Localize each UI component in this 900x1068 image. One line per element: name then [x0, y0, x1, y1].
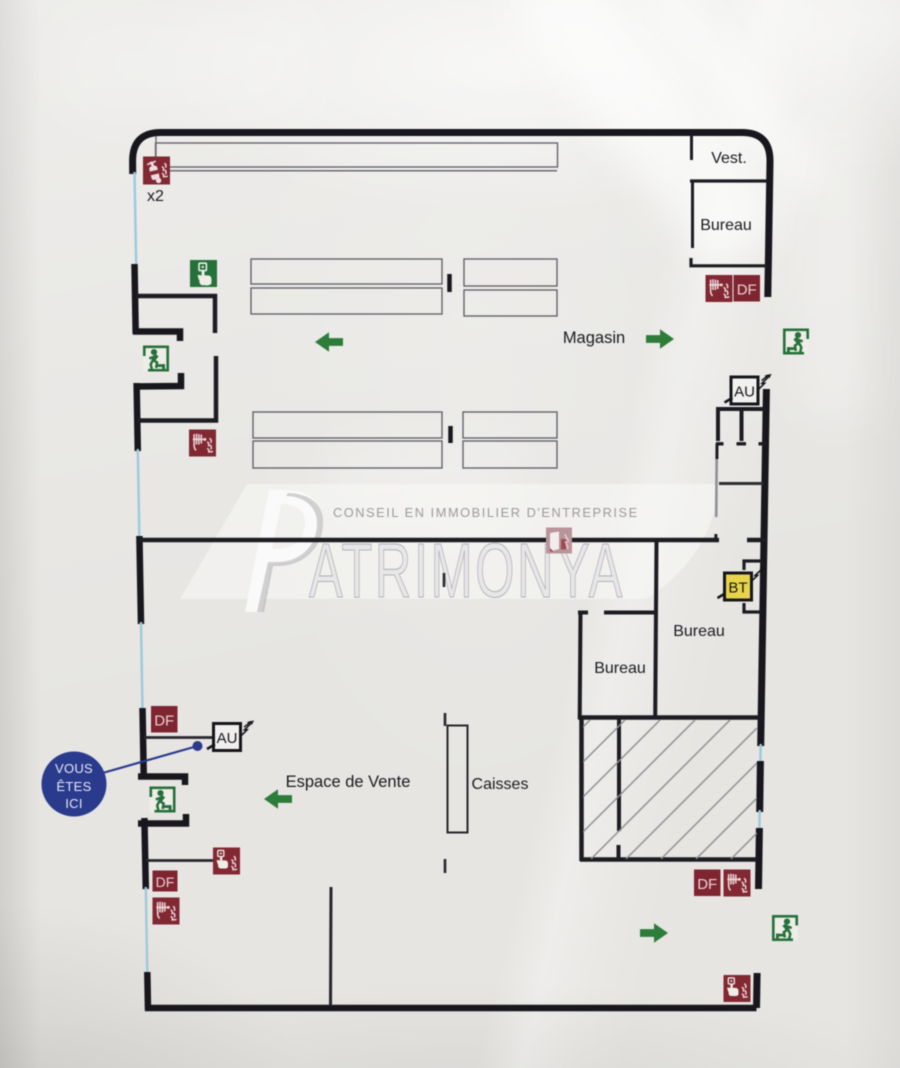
svg-text:Magasin: Magasin [563, 329, 625, 347]
svg-text:ICI: ICI [65, 796, 83, 811]
svg-text:Bureau: Bureau [673, 623, 725, 640]
svg-text:Caisses: Caisses [472, 776, 529, 793]
svg-text:Espace de Vente: Espace de Vente [286, 773, 411, 791]
svg-text:x2: x2 [147, 188, 164, 205]
svg-text:Bureau: Bureau [594, 660, 646, 677]
svg-text:Vest.: Vest. [711, 150, 747, 167]
svg-text:CONSEIL EN IMMOBILIER D'ENTREP: CONSEIL EN IMMOBILIER D'ENTREPRISE [333, 505, 639, 520]
svg-text:ÊTES: ÊTES [56, 779, 91, 794]
svg-text:Bureau: Bureau [700, 217, 752, 234]
svg-text:VOUS: VOUS [55, 761, 93, 776]
